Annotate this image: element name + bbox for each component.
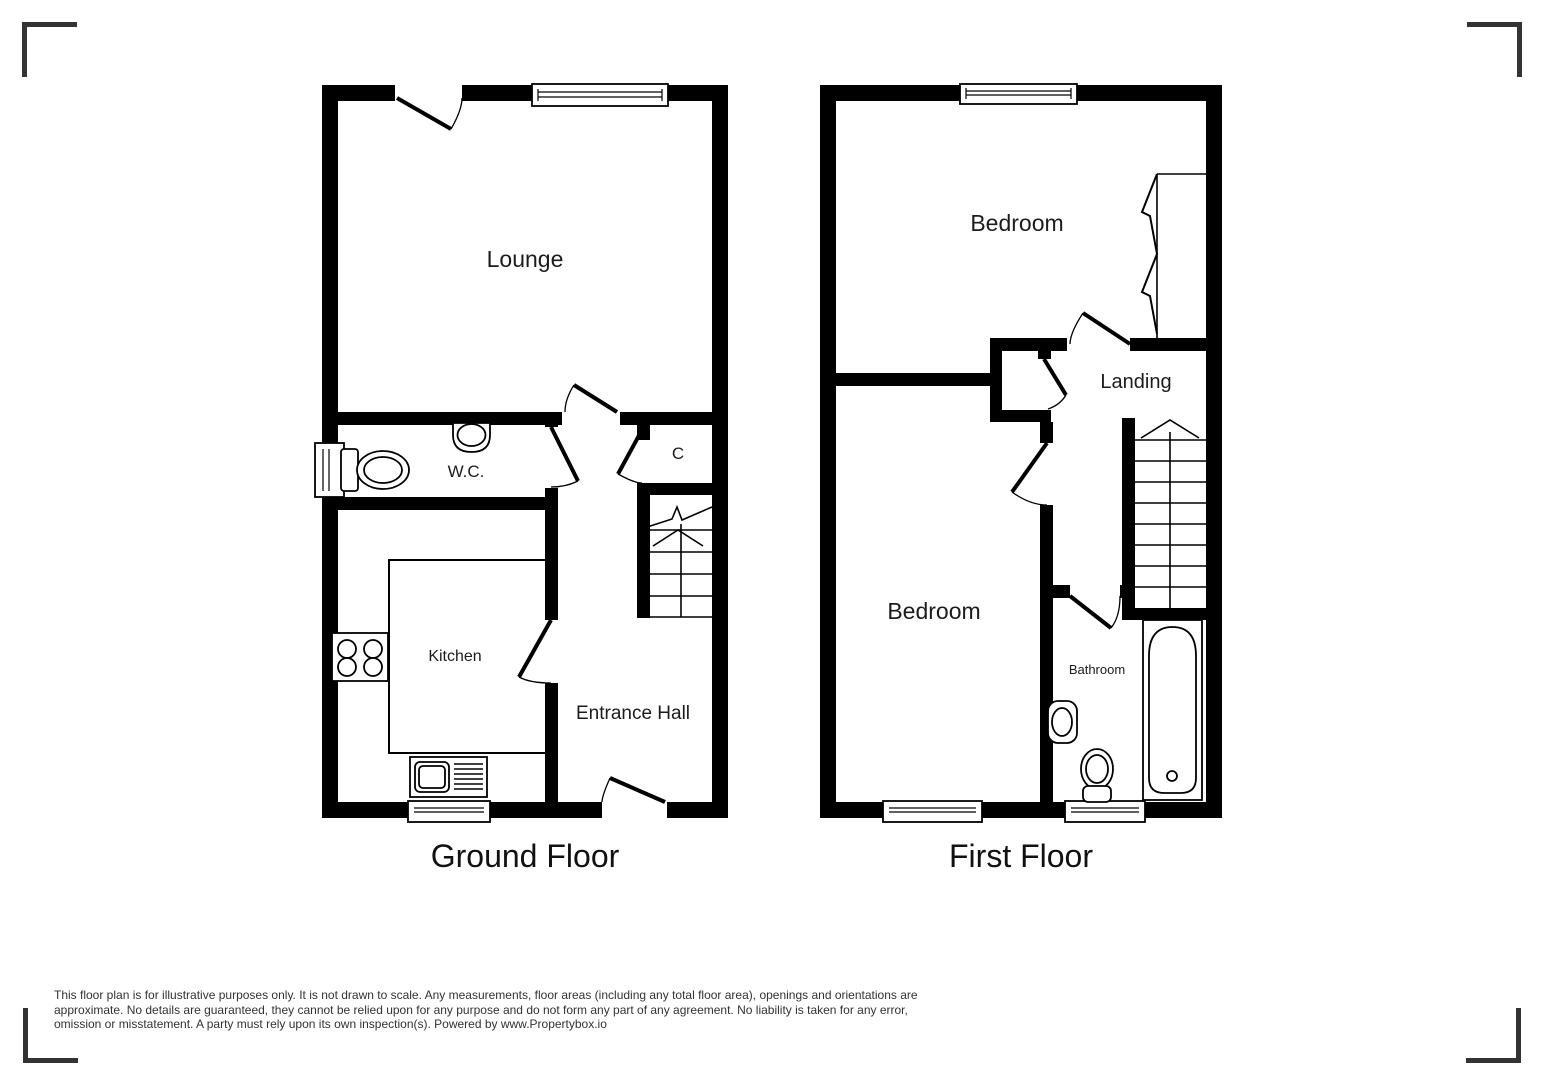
entrance-hall-label: Entrance Hall xyxy=(576,703,690,724)
first-stairs-icon xyxy=(1135,420,1206,608)
bathroom-sink-icon xyxy=(1048,701,1077,743)
bedroom-bottom-label: Bedroom xyxy=(887,598,980,624)
ground-floor-title: Ground Floor xyxy=(315,838,735,875)
bathroom-label: Bathroom xyxy=(1069,662,1125,677)
floor-plans-drawing: Lounge W.C. C Kitchen Entrance Hall xyxy=(0,0,1544,960)
cupboard-door xyxy=(618,430,642,483)
lounge-exterior-door xyxy=(397,98,462,129)
wc-window xyxy=(315,443,344,497)
wc-label: W.C. xyxy=(448,462,485,481)
ground-stairs-icon xyxy=(641,507,712,617)
lounge-label: Lounge xyxy=(487,246,564,272)
lounge-hall-door xyxy=(565,385,617,412)
bath-icon xyxy=(1143,620,1202,800)
hob-icon xyxy=(332,633,388,681)
wardrobe-icon xyxy=(1142,174,1206,338)
landing-cupboard-door xyxy=(1044,359,1066,409)
wc-sink-icon xyxy=(453,423,490,452)
bathroom-window xyxy=(1065,801,1145,822)
first-floor-plan: Bedroom Landing Bedroom Bathroom xyxy=(820,84,1222,822)
kitchen-window xyxy=(408,801,490,822)
cupboard-label: C xyxy=(672,444,684,463)
kitchen-label: Kitchen xyxy=(428,648,481,665)
floor-plan-page: Lounge W.C. C Kitchen Entrance Hall xyxy=(0,0,1544,1080)
kitchen-door xyxy=(519,620,551,683)
wc-toilet-icon xyxy=(341,449,409,491)
bathroom-toilet-icon xyxy=(1081,749,1113,802)
landing-label: Landing xyxy=(1100,371,1171,393)
bedroom-top-window xyxy=(960,84,1077,104)
bedroom-top-door xyxy=(1070,313,1130,344)
first-floor-title: First Floor xyxy=(811,838,1231,875)
bathroom-door xyxy=(1070,596,1120,628)
front-door xyxy=(602,778,665,802)
kitchen-sink-icon xyxy=(410,757,487,797)
disclaimer-text: This floor plan is for illustrative purp… xyxy=(54,988,1114,1032)
wc-door xyxy=(551,427,578,487)
ground-floor-plan: Lounge W.C. C Kitchen Entrance Hall xyxy=(315,84,728,822)
bedroom-bottom-window xyxy=(883,801,982,822)
bedroom-bottom-door xyxy=(1012,443,1047,505)
corner-mark-bottom-right xyxy=(1466,1008,1521,1063)
lounge-window xyxy=(532,84,668,106)
bedroom-top-label: Bedroom xyxy=(970,210,1063,236)
